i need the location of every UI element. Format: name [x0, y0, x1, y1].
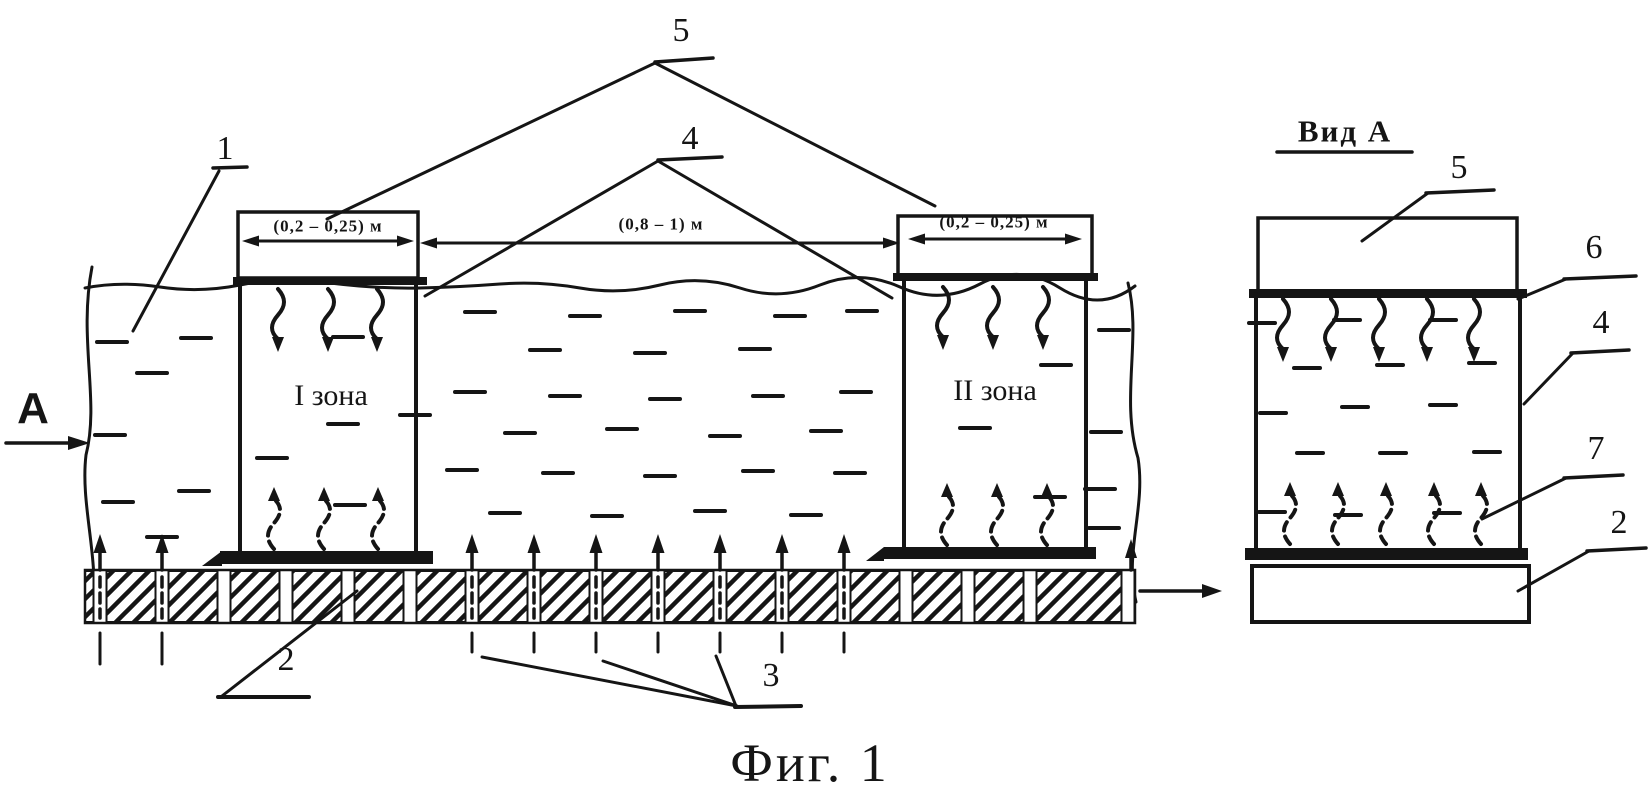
ref-label-4: 4	[682, 122, 699, 156]
side-ref-label-4: 4	[1593, 306, 1610, 340]
outflow-arrow	[1140, 584, 1222, 598]
dimension-zone1-width: (0,2 – 0,25) м	[273, 218, 382, 235]
zone-2-label: II зона	[953, 376, 1037, 406]
ref-label-5: 5	[673, 14, 690, 48]
side-ref-label-6: 6	[1586, 231, 1603, 265]
side-view-down-arrows	[1277, 299, 1480, 362]
section-arrow-label: А	[17, 387, 49, 431]
zone-1-down-arrows	[272, 289, 383, 352]
zone-1-label: I зона	[294, 381, 368, 411]
side-ref-label-7: 7	[1588, 432, 1605, 466]
section-a-arrow	[6, 436, 90, 450]
zone-1-up-arrows	[268, 487, 384, 549]
dimension-zone2-width: (0,2 – 0,25) м	[939, 214, 1048, 231]
diagram-artwork	[0, 0, 1652, 812]
ref-label-1: 1	[217, 132, 234, 166]
dimension-lines	[242, 234, 1082, 249]
dimension-gap-width: (0,8 – 1) м	[619, 216, 704, 233]
aeration-grid	[85, 570, 1135, 623]
zone-2-up-arrows	[941, 483, 1053, 545]
side-view-title: Вид А	[1298, 116, 1392, 147]
water-dashes	[95, 311, 1129, 537]
ref-label-2: 2	[278, 643, 295, 677]
figure-caption: Фиг. 1	[730, 736, 890, 790]
patent-figure-page: 1 5 4 2 3 А I зона II зона (0,2 – 0,25) …	[0, 0, 1652, 812]
side-ref-label-5: 5	[1451, 151, 1468, 185]
side-ref-label-2: 2	[1611, 506, 1628, 540]
side-view-leaders	[1362, 190, 1646, 591]
zone-2-down-arrows	[937, 287, 1049, 350]
ref-label-3: 3	[763, 659, 780, 693]
